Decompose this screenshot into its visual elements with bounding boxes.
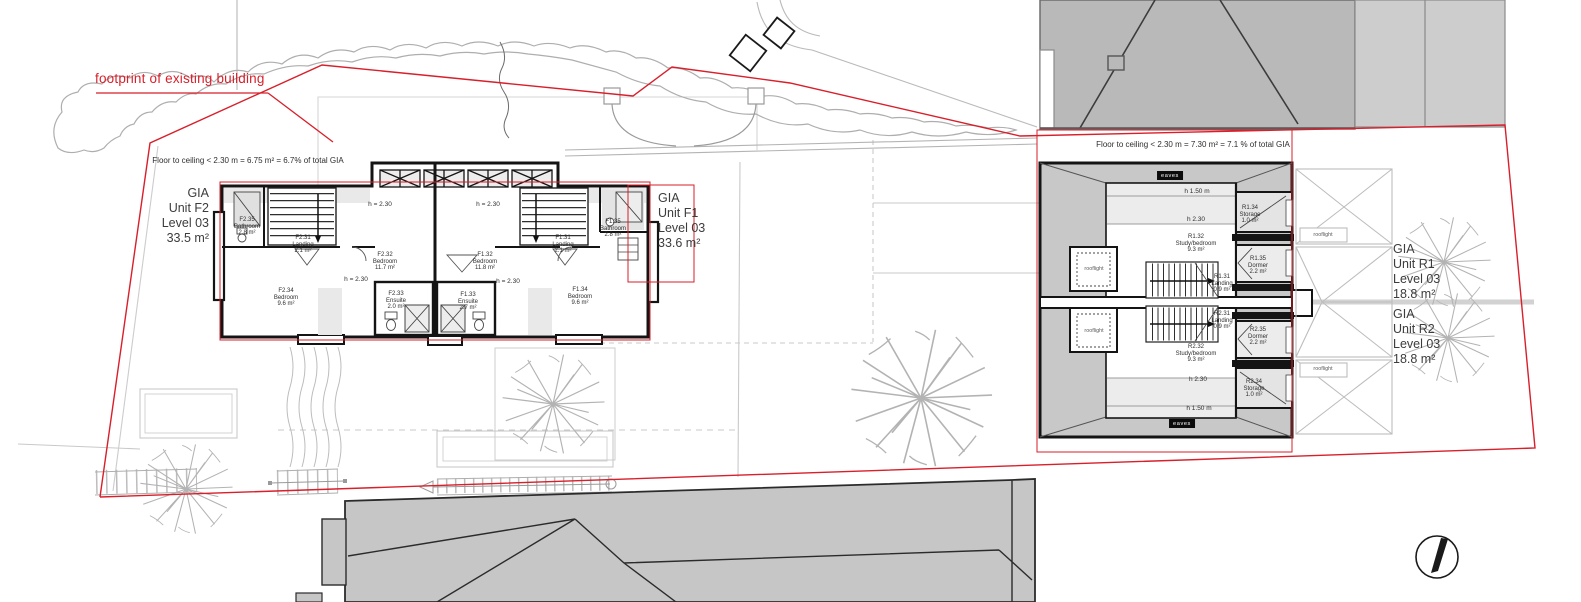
north-arrow-icon — [1416, 536, 1458, 578]
room-label-r2-35: R2.35Dormer2.2 m² — [1248, 327, 1268, 347]
room-label-r1-35: R1.35Dormer2.2 m² — [1248, 256, 1268, 276]
tree-symbol — [503, 355, 605, 454]
rooflight-label: rooflight — [1313, 366, 1332, 372]
room-label-r2-32: R2.32Study/bedroom9.3 m² — [1176, 344, 1217, 364]
room-label-r1-31: R1.31Landing0.9 m² — [1211, 274, 1232, 294]
room-label-f1-33: F1.33Ensuite2.7 m² — [458, 292, 478, 312]
gia-unit-r1: GIA Unit R1 Level 03 18.8 m² — [1393, 242, 1440, 302]
tree-symbol — [851, 330, 992, 466]
height-label: h = 2.30 — [368, 201, 392, 208]
building-f-plan — [214, 163, 658, 345]
room-label-r2-34: R2.34Storage1.0 m² — [1243, 379, 1264, 399]
height-label: h 2.30 — [1187, 216, 1205, 223]
diamond-planters — [730, 18, 795, 72]
ceiling-note-left: Floor to ceiling < 2.30 m = 6.75 m² = 6.… — [152, 156, 343, 165]
eaves-label: eaves — [1169, 419, 1195, 428]
building-r-plan — [1040, 163, 1312, 437]
height-label: h 2.30 — [1189, 376, 1207, 383]
gia-unit-r2: GIA Unit R2 Level 03 18.8 m² — [1393, 307, 1440, 367]
room-label-f1-32: F1.32Bedroom11.8 m² — [473, 252, 497, 272]
rooflight-label: rooflight — [1084, 266, 1103, 272]
site-plan-level-03: footprint of existing building Floor to … — [0, 0, 1581, 602]
stream-texture — [287, 347, 341, 467]
room-label-r1-32: R1.32Study/bedroom9.3 m² — [1176, 234, 1217, 254]
chimney — [1108, 56, 1124, 70]
room-label-f2-34: F2.34Bedroom9.6 m² — [274, 288, 298, 308]
gia-unit-f1: GIA Unit F1 Level 03 33.6 m² — [658, 191, 705, 251]
room-label-f1-35: F1.35Bathroom2.8 m² — [600, 219, 626, 239]
hedge-detail — [499, 42, 509, 138]
height-label: h 1.50 m — [1184, 188, 1209, 195]
neighbor-building-south — [296, 479, 1035, 602]
tree-symbol — [140, 444, 232, 533]
room-label-r2-31: R2.31Landing0.9 m² — [1211, 311, 1232, 331]
neighbor-building-north — [1040, 0, 1505, 129]
room-label-f2-35: F2.35Bathroom2.8 m² — [234, 217, 260, 237]
footprint-label: footprint of existing building — [95, 71, 265, 86]
room-label-r1-34: R1.34Storage1.0 m² — [1239, 205, 1260, 225]
ceiling-note-right: Floor to ceiling < 2.30 m = 7.30 m² = 7.… — [1096, 140, 1290, 149]
rooflight-label: rooflight — [1084, 328, 1103, 334]
eaves-label: eaves — [1157, 171, 1183, 180]
rooflight-label: rooflight — [1313, 232, 1332, 238]
height-label: h = 2.30 — [496, 278, 520, 285]
room-label-f2-31: F2.31Landing2.1 m² — [292, 235, 313, 255]
room-label-f1-34: F1.34Bedroom9.6 m² — [568, 287, 592, 307]
floor-plan-canvas — [0, 0, 1581, 602]
height-label: h = 2.30 — [344, 276, 368, 283]
height-label: h 1.50 m — [1186, 405, 1211, 412]
gia-unit-f2: GIA Unit F2 Level 03 33.5 m² — [125, 186, 209, 246]
height-label: h = 2.30 — [476, 201, 500, 208]
room-label-f2-32: F2.32Bedroom11.7 m² — [373, 252, 397, 272]
room-label-f1-31: F1.31Landing2.1 m² — [552, 235, 573, 255]
room-label-f2-33: F2.33Ensuite2.0 m² — [386, 291, 406, 311]
